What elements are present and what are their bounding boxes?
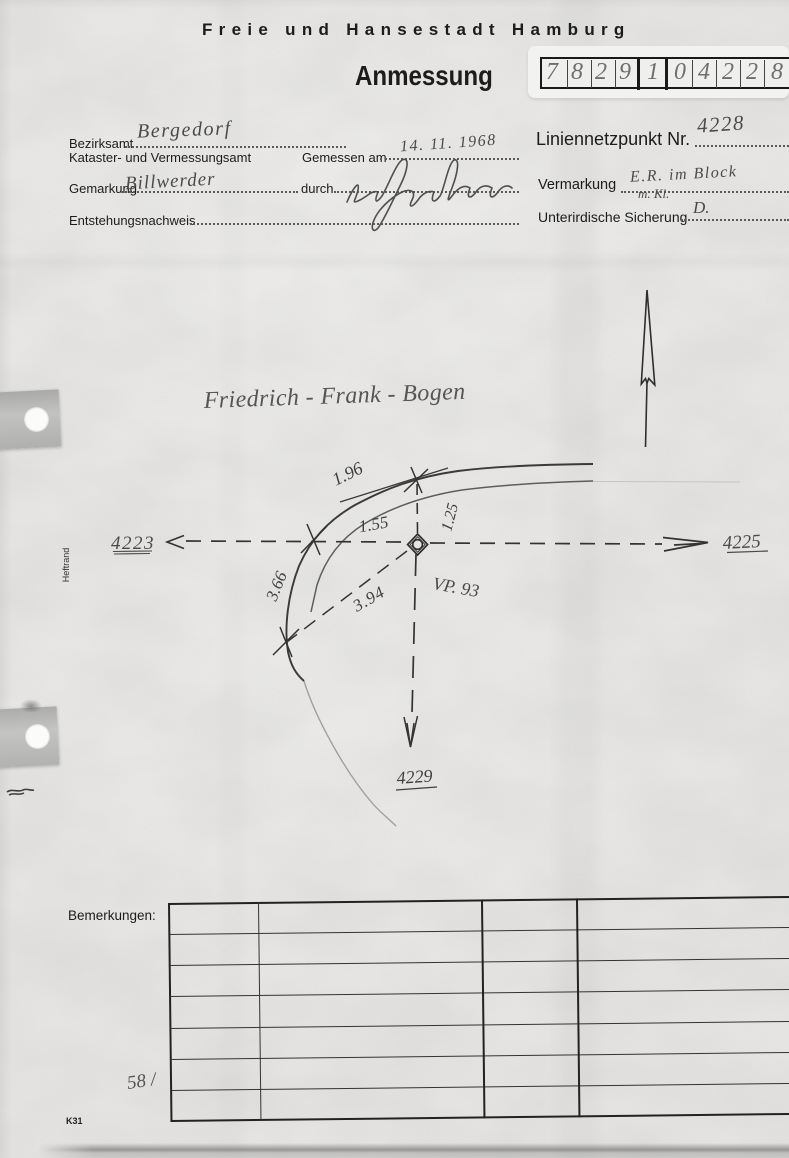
svg-text:1.55: 1.55 (357, 512, 390, 536)
svg-text:4225: 4225 (722, 531, 761, 554)
svg-text:1.96: 1.96 (329, 458, 366, 490)
svg-text:4229: 4229 (396, 766, 433, 788)
svg-text:Friedrich - Frank - Bogen: Friedrich - Frank - Bogen (202, 379, 466, 414)
svg-text:3.66: 3.66 (262, 568, 291, 604)
svg-text:1.25: 1.25 (438, 502, 462, 533)
svg-text:VP. 93: VP. 93 (431, 573, 480, 601)
svg-text:3.94: 3.94 (349, 582, 389, 616)
